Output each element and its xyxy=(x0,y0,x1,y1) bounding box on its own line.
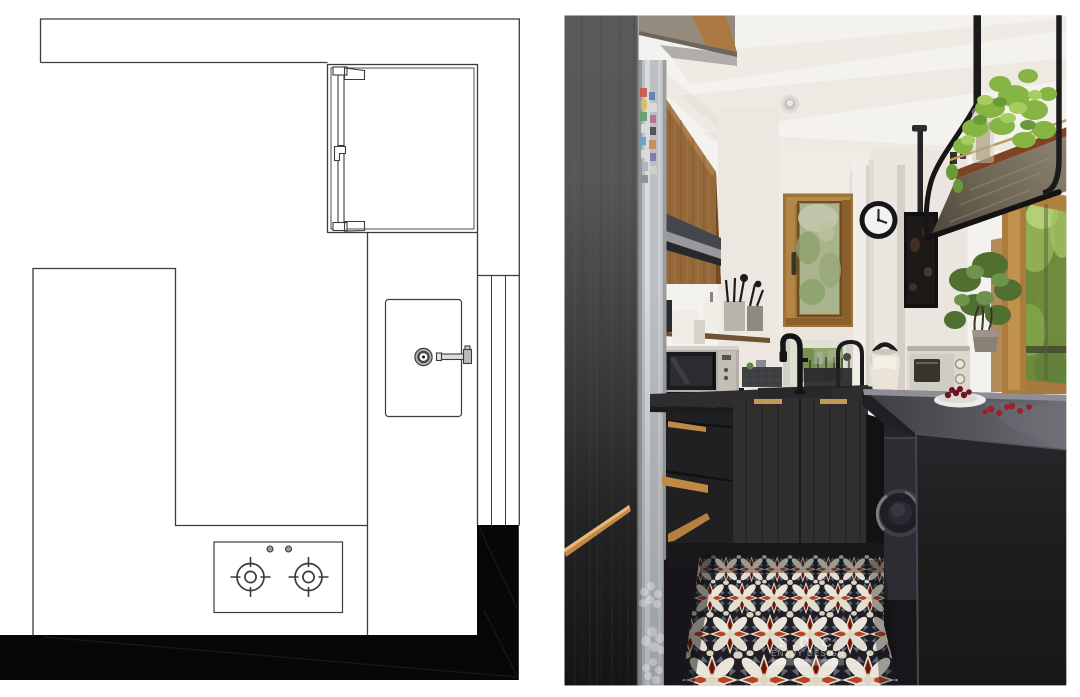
svg-text:ENJOY DESIGN: ENJOY DESIGN xyxy=(771,649,845,658)
svg-text:S.D.C: S.D.C xyxy=(778,634,835,650)
